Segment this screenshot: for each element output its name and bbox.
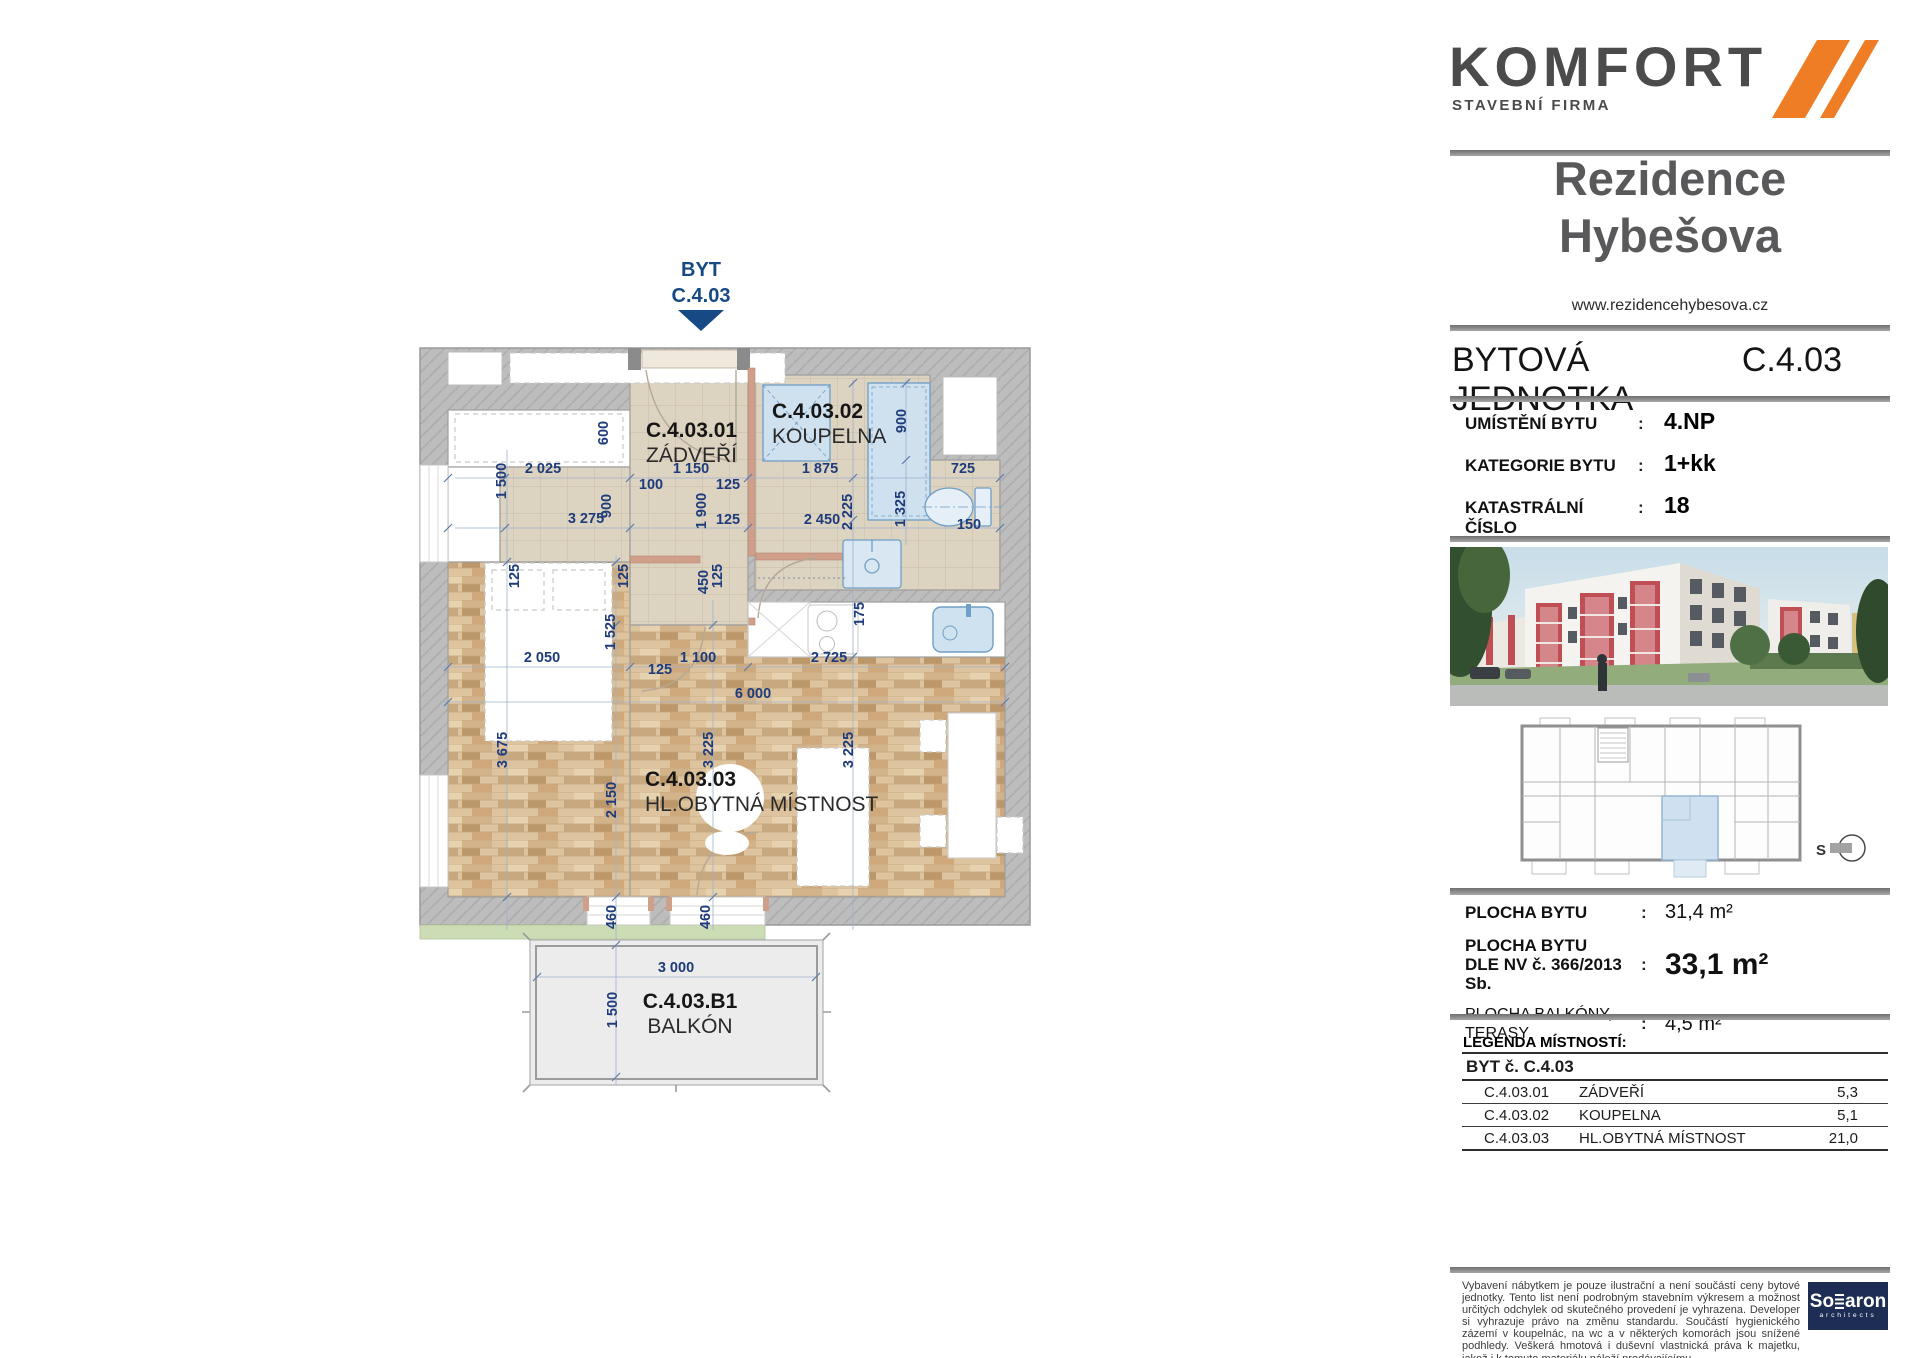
window-left-2 <box>420 775 448 887</box>
info-value: 18 <box>1664 492 1885 519</box>
dining-table <box>948 713 996 858</box>
dimension-label: 3 225 <box>841 732 857 768</box>
room-code: C.4.03.03 <box>645 768 736 791</box>
lg-code: C.4.03.02 <box>1462 1104 1579 1127</box>
unit-info-row: KATEGORIE BYTU : 1+kk <box>1465 450 1885 477</box>
area-colon: : <box>1641 955 1665 975</box>
divider <box>1450 1014 1890 1020</box>
solaron-logo: So aron architects <box>1808 1282 1888 1330</box>
area-label: PLOCHA BYTUDLE NV č. 366/2013 Sb. <box>1465 936 1641 993</box>
info-label: KATEGORIE BYTU <box>1465 456 1638 476</box>
dimension-label: 125 <box>716 512 740 528</box>
divider <box>1450 396 1890 402</box>
dimension-label: 100 <box>639 477 663 493</box>
lg-area: 21,0 <box>1773 1127 1888 1151</box>
solaron-bars-icon <box>1835 1294 1844 1311</box>
divider <box>1450 536 1890 542</box>
room-code: C.4.03.02 <box>772 400 863 423</box>
lg-area: 5,3 <box>1773 1080 1888 1104</box>
disclaimer-text: Vybavení nábytkem je pouze ilustrační a … <box>1462 1280 1800 1358</box>
info-value: 1+kk <box>1664 450 1885 477</box>
entry-threshold <box>642 350 738 368</box>
unit-info-row: UMÍSTĚNÍ BYTU : 4.NP <box>1465 408 1885 435</box>
floorplan-sheet: BYT C.4.03 6001 5002 0259003 2751001 150… <box>0 0 1920 1358</box>
dimension-label: 2 725 <box>811 650 847 666</box>
sideboard <box>797 748 869 886</box>
dimension-label: 1 500 <box>605 992 621 1028</box>
legend-row: C.4.03.03HL.OBYTNÁ MÍSTNOST21,0 <box>1462 1127 1888 1151</box>
lg-area: 5,1 <box>1773 1104 1888 1127</box>
area-row: PLOCHA BYTUDLE NV č. 366/2013 Sb.:33,1 m… <box>1465 936 1888 993</box>
project-website: www.rezidencehybesova.cz <box>1450 297 1890 315</box>
dimension-label: 1 875 <box>802 461 838 477</box>
legend-group-label: BYT č. C.4.03 <box>1462 1053 1888 1080</box>
sink <box>933 607 993 652</box>
info-label: UMÍSTĚNÍ BYTU <box>1465 414 1638 434</box>
divider <box>1450 325 1890 331</box>
dimension-label: 1 100 <box>680 650 716 666</box>
area-label: PLOCHA BYTU <box>1465 903 1641 922</box>
dimension-label: 900 <box>894 409 910 433</box>
north-arrow-icon: S <box>1816 835 1865 861</box>
divider <box>1450 888 1890 895</box>
dimension-label: 3 275 <box>568 511 604 527</box>
dimension-label: 6 000 <box>735 686 771 702</box>
room-name: KOUPELNA <box>772 425 886 448</box>
unit-info: UMÍSTĚNÍ BYTU : 4.NPKATEGORIE BYTU : 1+k… <box>1465 408 1885 553</box>
dimension-label: 125 <box>507 564 523 588</box>
legend-row: C.4.03.01ZÁDVEŘÍ5,3 <box>1462 1080 1888 1104</box>
floor-locator-plan: S <box>1500 712 1890 888</box>
info-value: 4.NP <box>1664 408 1885 435</box>
building-photo <box>1450 547 1888 706</box>
dimension-label: 150 <box>957 517 981 533</box>
floor-zadveri <box>630 368 748 625</box>
info-label: KATASTRÁLNÍ ČÍSLO <box>1465 498 1638 538</box>
dimension-label: 175 <box>852 602 868 626</box>
flag-line1: BYT <box>681 259 721 281</box>
area-value: 31,4 m² <box>1665 901 1888 924</box>
dimension-label: 1 325 <box>893 491 909 527</box>
dimension-label: 2 050 <box>524 650 560 666</box>
flag-arrow-icon <box>678 310 724 331</box>
floorplan-drawing: BYT C.4.03 6001 5002 0259003 2751001 150… <box>400 240 1060 1100</box>
info-colon: : <box>1638 414 1664 434</box>
legend-title: LEGENDA MÍSTNOSTÍ: <box>1463 1034 1627 1051</box>
room-name: HL.OBYTNÁ MÍSTNOST <box>645 793 879 816</box>
info-colon: : <box>1638 456 1664 476</box>
area-row: PLOCHA BYTU:31,4 m² <box>1465 901 1888 924</box>
dimension-label: 125 <box>710 564 726 588</box>
dimension-label: 3 000 <box>658 960 694 976</box>
room-code: C.4.03.01 <box>646 419 737 442</box>
lg-code: C.4.03.03 <box>1462 1127 1579 1151</box>
north-label: S <box>1816 842 1826 859</box>
room-name: BALKÓN <box>647 1015 732 1038</box>
room-code: C.4.03.B1 <box>643 990 738 1013</box>
highlighted-balcony <box>1674 860 1706 877</box>
areas: PLOCHA BYTU:31,4 m²PLOCHA BYTUDLE NV č. … <box>1465 901 1888 1055</box>
dimension-label: 125 <box>716 477 740 493</box>
project-title: Rezidence Hybešova <box>1450 150 1890 264</box>
area-colon: : <box>1641 903 1665 923</box>
info-colon: : <box>1638 498 1664 518</box>
dimension-label: 460 <box>604 905 620 929</box>
legend-table: BYT č. C.4.03C.4.03.01ZÁDVEŘÍ5,3C.4.03.0… <box>1462 1052 1888 1151</box>
window-left-1 <box>420 465 448 562</box>
komfort-logo: KOMFORT <box>1449 34 1767 99</box>
lg-name: ZÁDVEŘÍ <box>1579 1080 1773 1104</box>
legend-row: C.4.03.02KOUPELNA5,1 <box>1462 1104 1888 1127</box>
area-value: 33,1 m² <box>1665 948 1888 982</box>
lg-code: C.4.03.01 <box>1462 1080 1579 1104</box>
dimension-label: 3 225 <box>701 732 717 768</box>
dimension-label: 2 225 <box>840 494 856 530</box>
dimension-label: 725 <box>951 461 975 477</box>
unit-flag: BYT C.4.03 <box>672 259 731 331</box>
lg-name: HL.OBYTNÁ MÍSTNOST <box>1579 1127 1773 1151</box>
dimension-label: 125 <box>648 662 672 678</box>
dimension-label: 2 450 <box>804 512 840 528</box>
dimension-label: 1 500 <box>494 463 510 499</box>
komfort-logo-subtitle: STAVEBNÍ FIRMA <box>1452 97 1611 114</box>
dimension-label: 1 900 <box>694 493 710 529</box>
dimension-label: 460 <box>698 905 714 929</box>
dimension-label: 2 025 <box>525 461 561 477</box>
dimension-label: 600 <box>596 421 612 445</box>
flag-line2: C.4.03 <box>672 285 731 307</box>
divider <box>1450 1267 1890 1273</box>
lg-name: KOUPELNA <box>1579 1104 1773 1127</box>
dimension-label: 3 675 <box>495 732 511 768</box>
komfort-slash-icon <box>1772 40 1882 118</box>
dimension-label: 125 <box>616 564 632 588</box>
room-name: ZÁDVEŘÍ <box>646 444 737 467</box>
balcony-door-2 <box>670 897 765 925</box>
dimension-label: 1 525 <box>603 614 619 650</box>
legend-group-row: BYT č. C.4.03 <box>1462 1053 1888 1080</box>
unit-info-row: KATASTRÁLNÍ ČÍSLO : 18 <box>1465 492 1885 538</box>
dimension-label: 2 150 <box>604 782 620 818</box>
